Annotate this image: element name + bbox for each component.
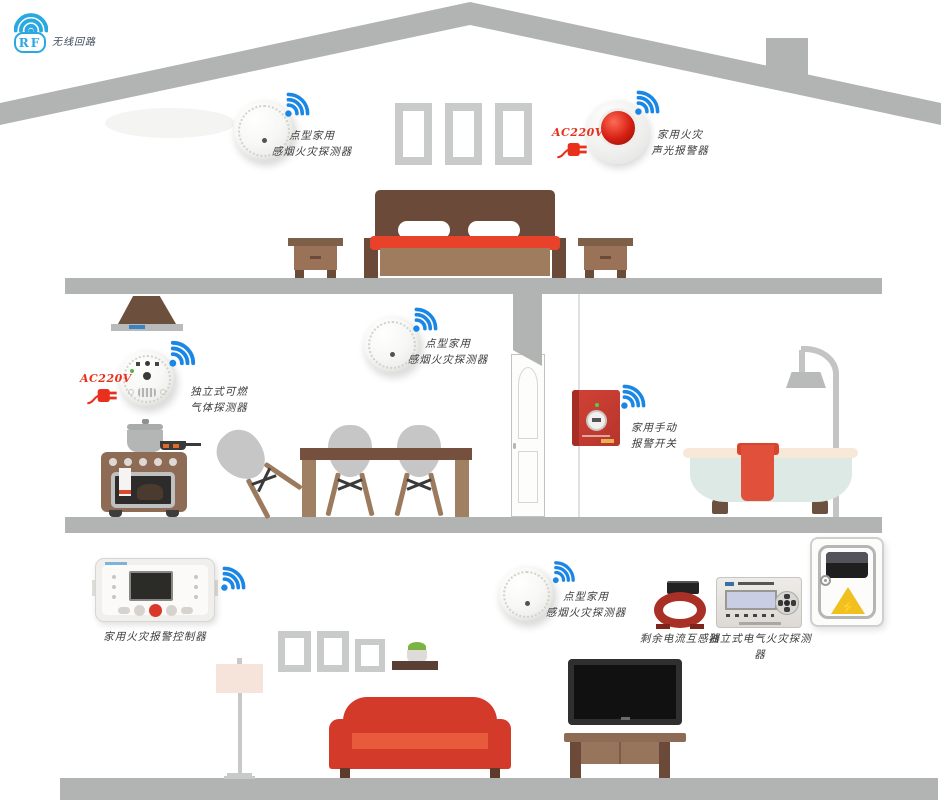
controller-dot bbox=[112, 595, 116, 599]
manual-alarm bbox=[572, 390, 620, 446]
manual-alarm-edge bbox=[572, 390, 579, 446]
nightstand-leg bbox=[617, 270, 626, 278]
detector-led bbox=[525, 601, 530, 606]
efd-keypad bbox=[775, 591, 799, 615]
table-leg bbox=[302, 460, 316, 517]
efd-key-center bbox=[784, 600, 790, 606]
roof-right-slope bbox=[470, 2, 941, 125]
label-line: 独立式可燃 bbox=[178, 384, 260, 400]
tv-stand-drawers bbox=[581, 742, 659, 764]
oven-bread bbox=[137, 484, 163, 500]
ct-ring bbox=[654, 592, 706, 628]
sofa-cushion bbox=[343, 733, 497, 749]
diagram-canvas: RF 无线回路 点型家用 感烟火灾探测器 bbox=[0, 0, 941, 802]
shower-head bbox=[786, 372, 826, 388]
controller-screen bbox=[129, 571, 173, 601]
door-panel bbox=[518, 451, 538, 503]
device-label: 家用手动 报警开关 bbox=[618, 420, 690, 453]
device-label: 独立式可燃 气体探测器 bbox=[178, 384, 260, 417]
ct-foot bbox=[690, 624, 704, 629]
manual-alarm-glass bbox=[592, 418, 601, 422]
wifi-icon bbox=[166, 336, 200, 370]
controller-button bbox=[181, 607, 193, 614]
efd-key bbox=[791, 600, 796, 606]
tv-stand-top bbox=[564, 733, 686, 742]
electrical-panel: ⚡ bbox=[810, 537, 884, 627]
device-label: 家用火灾 声光报警器 bbox=[640, 127, 720, 160]
efd-key bbox=[778, 600, 783, 606]
controller-dot bbox=[112, 575, 116, 579]
device-label: 点型家用 感烟火灾探测器 bbox=[262, 128, 362, 161]
label-line: 感烟火灾探测器 bbox=[536, 605, 636, 621]
label-line: 报警开关 bbox=[618, 436, 690, 452]
pot bbox=[127, 430, 163, 452]
controller-brand bbox=[105, 562, 127, 565]
wifi-icon bbox=[618, 380, 650, 412]
power-label: AC220V bbox=[80, 372, 132, 385]
picture-frame bbox=[317, 631, 349, 672]
label-line: 感烟火灾探测器 bbox=[398, 352, 498, 368]
rf-label: 无线回路 bbox=[52, 35, 122, 51]
rf-logo: RF 无线回路 bbox=[8, 6, 198, 58]
fire-controller bbox=[95, 558, 215, 622]
pot-knob bbox=[142, 419, 149, 424]
nightstand-leg bbox=[585, 270, 594, 278]
label-line: 家用火灾报警控制器 bbox=[92, 629, 218, 645]
pan-handle bbox=[186, 443, 201, 446]
sofa-leg bbox=[340, 768, 350, 778]
label-line: 声光报警器 bbox=[640, 143, 720, 159]
flame bbox=[163, 444, 169, 448]
tv-stand-leg bbox=[659, 742, 670, 778]
stove-foot bbox=[166, 510, 179, 517]
label-line: 点型家用 bbox=[398, 336, 498, 352]
controller-alarm-button bbox=[149, 604, 162, 617]
stove-towel-stripe bbox=[119, 490, 131, 494]
stove-knob bbox=[169, 458, 177, 466]
device-label: 家用火灾报警控制器 bbox=[92, 629, 218, 645]
stove-knob bbox=[154, 458, 162, 466]
table-top bbox=[300, 448, 472, 460]
chair bbox=[396, 425, 442, 517]
electric-fire-detector bbox=[716, 577, 802, 628]
plug-icon bbox=[556, 140, 588, 159]
wifi-icon bbox=[410, 303, 442, 335]
window bbox=[395, 103, 432, 165]
detector-led bbox=[390, 352, 395, 357]
label-line: 点型家用 bbox=[262, 128, 362, 144]
picture-frame bbox=[355, 639, 385, 672]
tv-logo bbox=[621, 717, 630, 720]
controller-dot bbox=[194, 595, 198, 599]
controller-button bbox=[134, 605, 145, 616]
lamp-shade bbox=[216, 664, 263, 693]
nightstand-leg bbox=[295, 270, 304, 278]
label-line: 点型家用 bbox=[536, 589, 636, 605]
panel-lock-pin bbox=[824, 579, 827, 582]
controller-dot bbox=[112, 585, 116, 589]
manual-alarm-logo bbox=[601, 439, 614, 443]
range-hood-light bbox=[129, 325, 145, 329]
rf-abbr: RF bbox=[19, 36, 42, 50]
stove-knob bbox=[139, 458, 147, 466]
nightstand-top bbox=[288, 238, 343, 246]
gas-indicator bbox=[136, 362, 140, 366]
panel-lock bbox=[820, 575, 831, 586]
manual-alarm-led bbox=[595, 403, 599, 407]
sofa-leg bbox=[490, 768, 500, 778]
lamp-base bbox=[224, 776, 255, 779]
controller-button bbox=[166, 605, 177, 616]
flame bbox=[173, 444, 179, 448]
door-knob bbox=[513, 443, 516, 449]
panel-window bbox=[826, 552, 868, 578]
wifi-icon bbox=[218, 562, 250, 594]
controller-dot bbox=[194, 575, 198, 579]
efd-logo bbox=[725, 582, 734, 586]
lamp-pole bbox=[238, 693, 242, 775]
table-leg bbox=[455, 460, 469, 517]
stove-knob bbox=[124, 458, 132, 466]
device-label: 点型家用 感烟火灾探测器 bbox=[398, 336, 498, 369]
range-hood-vent bbox=[111, 324, 183, 331]
nightstand-top bbox=[578, 238, 633, 246]
sofa-arm bbox=[329, 719, 352, 769]
label-line: 气体探测器 bbox=[178, 400, 260, 416]
gas-hole bbox=[160, 389, 166, 395]
tv bbox=[568, 659, 682, 725]
sofa bbox=[329, 697, 511, 778]
towel bbox=[741, 445, 774, 501]
wifi-icon bbox=[14, 10, 48, 34]
controller-button bbox=[118, 607, 130, 614]
bed-base bbox=[380, 248, 550, 276]
device-label: 点型家用 感烟火灾探测器 bbox=[536, 589, 636, 622]
chair bbox=[327, 425, 373, 517]
efd-key bbox=[784, 607, 790, 612]
efd-key bbox=[784, 594, 790, 599]
wifi-icon bbox=[550, 557, 579, 586]
tv-stand-divider bbox=[619, 742, 621, 764]
rf-badge: RF bbox=[14, 32, 46, 53]
door bbox=[511, 354, 545, 517]
gas-grille bbox=[138, 388, 156, 397]
window bbox=[495, 103, 532, 165]
ct-foot bbox=[656, 624, 670, 629]
label-line: 独立式电气火灾探测器 bbox=[706, 631, 814, 664]
label-line: 感烟火灾探测器 bbox=[262, 144, 362, 160]
wifi-icon bbox=[632, 86, 664, 118]
controller-dot bbox=[194, 585, 198, 589]
label-line: 家用火灾 bbox=[640, 127, 720, 143]
hazard-glyph: ⚡ bbox=[841, 600, 856, 614]
wifi-icon bbox=[282, 88, 314, 120]
cloud bbox=[105, 108, 235, 138]
gas-indicator bbox=[155, 362, 159, 366]
gas-indicator bbox=[145, 361, 150, 366]
label-line: 家用手动 bbox=[618, 420, 690, 436]
picture-frame bbox=[278, 631, 311, 672]
door-panel bbox=[518, 367, 538, 439]
gas-sensor bbox=[143, 372, 151, 380]
nightstand-handle bbox=[600, 256, 611, 259]
floor-slab-ground bbox=[60, 778, 938, 800]
stove-knob bbox=[109, 458, 117, 466]
sofa-arm bbox=[488, 719, 511, 769]
nightstand-handle bbox=[310, 256, 321, 259]
stove-foot bbox=[109, 510, 122, 517]
device-label: 独立式电气火灾探测器 bbox=[706, 631, 814, 664]
efd-lcd bbox=[725, 590, 777, 610]
floor-slab-upper bbox=[65, 278, 882, 294]
power-label: AC220V bbox=[552, 126, 604, 139]
shower-connector bbox=[799, 350, 805, 374]
floor-slab-middle bbox=[65, 517, 882, 533]
tv-stand-leg bbox=[570, 742, 581, 778]
efd-caption bbox=[739, 622, 781, 625]
manual-alarm-button bbox=[586, 410, 607, 431]
efd-buttons bbox=[726, 614, 774, 617]
plant-shelf bbox=[392, 661, 438, 670]
manual-alarm-text-line bbox=[582, 435, 610, 437]
gas-hole bbox=[128, 389, 134, 395]
nightstand-leg bbox=[327, 270, 336, 278]
plug-icon bbox=[86, 386, 118, 405]
window bbox=[445, 103, 482, 165]
panel-window-glare bbox=[826, 552, 868, 563]
efd-title bbox=[738, 582, 774, 585]
